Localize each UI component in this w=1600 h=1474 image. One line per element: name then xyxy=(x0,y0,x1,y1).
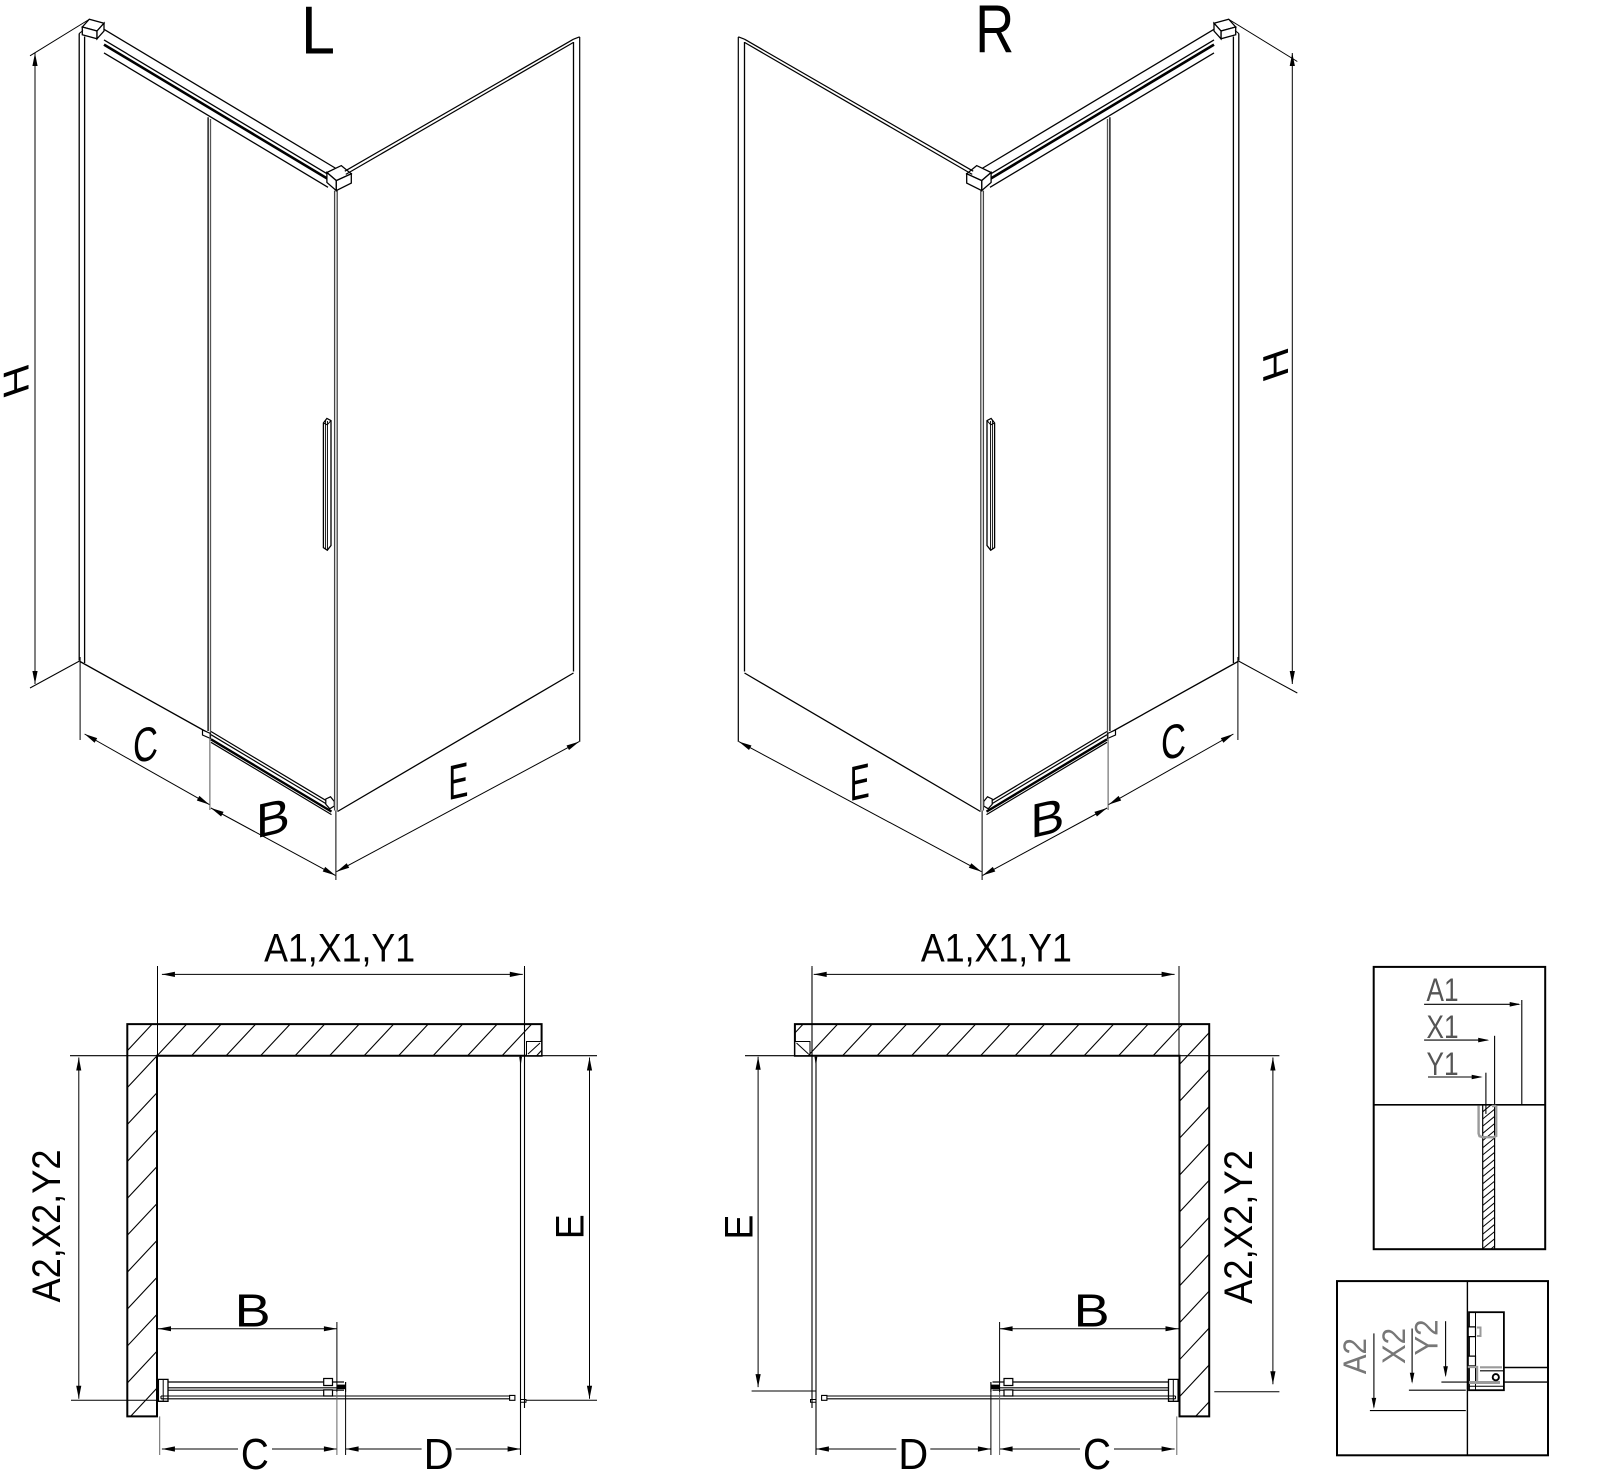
svg-text:D: D xyxy=(898,1430,928,1474)
svg-text:B: B xyxy=(1074,1284,1110,1336)
svg-text:E: E xyxy=(718,1215,762,1240)
svg-text:A2,X2,Y2: A2,X2,Y2 xyxy=(25,1150,69,1303)
svg-text:D: D xyxy=(424,1430,454,1474)
svg-text:C: C xyxy=(241,1430,269,1474)
svg-text:R: R xyxy=(975,0,1014,68)
svg-text:B: B xyxy=(256,788,290,849)
svg-text:C: C xyxy=(1161,713,1186,772)
svg-text:A1: A1 xyxy=(1427,972,1459,1008)
svg-text:A1,X1,Y1: A1,X1,Y1 xyxy=(264,926,415,970)
svg-text:Y2: Y2 xyxy=(1408,1320,1444,1356)
svg-text:C: C xyxy=(1083,1430,1111,1474)
svg-text:B: B xyxy=(235,1284,271,1336)
svg-text:A1,X1,Y1: A1,X1,Y1 xyxy=(921,926,1072,970)
svg-text:B: B xyxy=(1030,788,1064,849)
svg-text:E: E xyxy=(548,1214,592,1239)
svg-text:A2,X2,Y2: A2,X2,Y2 xyxy=(1217,1150,1261,1304)
svg-text:E: E xyxy=(850,752,870,812)
svg-text:X2: X2 xyxy=(1376,1328,1412,1364)
svg-text:L: L xyxy=(301,0,335,69)
svg-text:A2: A2 xyxy=(1337,1338,1373,1374)
svg-text:X1: X1 xyxy=(1427,1009,1459,1045)
svg-text:E: E xyxy=(448,751,468,811)
svg-text:C: C xyxy=(133,716,158,775)
